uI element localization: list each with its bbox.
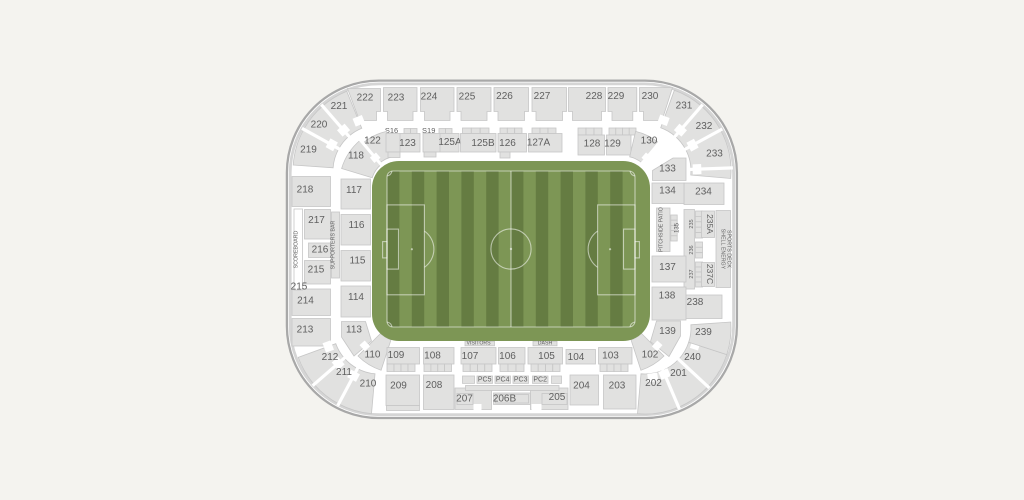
svg-text:137: 137 <box>659 262 676 273</box>
svg-text:201: 201 <box>670 368 687 379</box>
svg-text:230: 230 <box>642 91 659 102</box>
svg-text:235A: 235A <box>705 214 715 234</box>
svg-text:240: 240 <box>684 352 701 363</box>
svg-text:217: 217 <box>308 215 325 226</box>
svg-text:DASH: DASH <box>538 341 553 347</box>
svg-text:129: 129 <box>604 139 621 150</box>
svg-text:134: 134 <box>659 186 676 197</box>
svg-text:PITCHSIDE PATIO: PITCHSIDE PATIO <box>659 207 665 252</box>
svg-text:213: 213 <box>297 325 314 336</box>
svg-text:234: 234 <box>695 187 712 198</box>
svg-text:110: 110 <box>365 350 381 361</box>
svg-text:229: 229 <box>608 91 625 102</box>
svg-text:206B: 206B <box>493 394 517 405</box>
svg-text:218: 218 <box>297 185 314 196</box>
svg-text:228: 228 <box>586 91 603 102</box>
svg-text:133: 133 <box>659 164 676 175</box>
svg-text:208: 208 <box>426 380 443 391</box>
svg-text:235: 235 <box>689 219 695 228</box>
svg-text:SHELL ENERGY: SHELL ENERGY <box>719 229 725 270</box>
svg-text:116: 116 <box>349 220 365 231</box>
svg-text:106: 106 <box>499 351 516 362</box>
svg-text:236: 236 <box>689 245 695 254</box>
svg-text:216: 216 <box>312 245 329 256</box>
svg-text:138: 138 <box>659 291 676 302</box>
svg-text:225: 225 <box>459 92 476 103</box>
svg-text:226: 226 <box>496 91 513 102</box>
svg-text:219: 219 <box>300 145 317 156</box>
svg-text:231: 231 <box>676 101 693 112</box>
svg-text:227: 227 <box>534 91 551 102</box>
svg-text:109: 109 <box>388 350 405 361</box>
svg-text:SPORTS DECK: SPORTS DECK <box>725 230 731 268</box>
svg-text:122: 122 <box>364 136 381 147</box>
svg-text:232: 232 <box>696 121 713 132</box>
svg-text:104: 104 <box>568 352 585 363</box>
svg-text:223: 223 <box>388 93 405 104</box>
svg-text:103: 103 <box>602 351 619 362</box>
svg-text:123: 123 <box>399 138 416 149</box>
svg-text:108: 108 <box>424 351 441 362</box>
svg-text:PC5: PC5 <box>478 376 492 383</box>
svg-text:212: 212 <box>322 352 339 363</box>
svg-text:113: 113 <box>346 325 362 336</box>
svg-text:205: 205 <box>549 392 566 403</box>
svg-text:105: 105 <box>538 351 555 362</box>
svg-text:135: 135 <box>675 222 681 233</box>
svg-text:224: 224 <box>421 92 438 103</box>
svg-text:204: 204 <box>573 381 590 392</box>
svg-text:PC3: PC3 <box>514 376 528 383</box>
svg-text:SCOREBOARD: SCOREBOARD <box>293 230 299 268</box>
svg-text:239: 239 <box>695 327 712 338</box>
svg-text:211: 211 <box>336 367 352 378</box>
svg-text:127A: 127A <box>527 138 551 149</box>
svg-text:214: 214 <box>297 296 314 307</box>
svg-text:221: 221 <box>331 101 348 112</box>
svg-text:207: 207 <box>456 394 473 405</box>
svg-text:209: 209 <box>390 381 407 392</box>
svg-text:237C: 237C <box>705 264 715 284</box>
svg-text:SUPPORTERS BAR: SUPPORTERS BAR <box>331 220 337 269</box>
svg-text:125A: 125A <box>438 137 462 148</box>
svg-text:107: 107 <box>462 351 479 362</box>
svg-text:222: 222 <box>357 93 374 104</box>
svg-text:PC4: PC4 <box>496 376 510 383</box>
svg-text:215: 215 <box>308 265 325 276</box>
svg-text:125B: 125B <box>471 138 495 149</box>
svg-text:215: 215 <box>291 282 308 293</box>
svg-text:102: 102 <box>642 350 659 361</box>
svg-text:VISITORS: VISITORS <box>466 341 491 347</box>
svg-text:126: 126 <box>499 138 516 149</box>
svg-text:130: 130 <box>641 136 658 147</box>
svg-text:210: 210 <box>360 379 377 390</box>
svg-text:238: 238 <box>687 297 704 308</box>
svg-text:233: 233 <box>706 149 723 160</box>
svg-text:118: 118 <box>348 151 364 162</box>
svg-text:115: 115 <box>350 256 366 267</box>
svg-text:203: 203 <box>609 381 626 392</box>
svg-text:PC2: PC2 <box>533 376 547 383</box>
svg-text:139: 139 <box>659 326 676 337</box>
svg-text:237: 237 <box>689 269 695 278</box>
svg-text:128: 128 <box>584 139 601 150</box>
svg-text:202: 202 <box>645 378 662 389</box>
svg-text:114: 114 <box>348 292 364 303</box>
svg-text:220: 220 <box>311 120 328 131</box>
svg-text:117: 117 <box>346 185 362 196</box>
